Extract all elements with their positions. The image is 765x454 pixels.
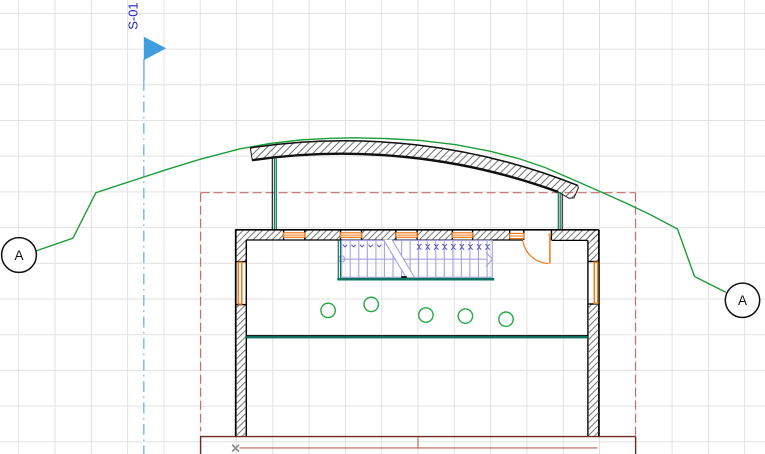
svg-text:S-01: S-01 — [126, 2, 141, 29]
svg-text:A: A — [14, 248, 23, 263]
svg-text:A: A — [738, 293, 747, 308]
